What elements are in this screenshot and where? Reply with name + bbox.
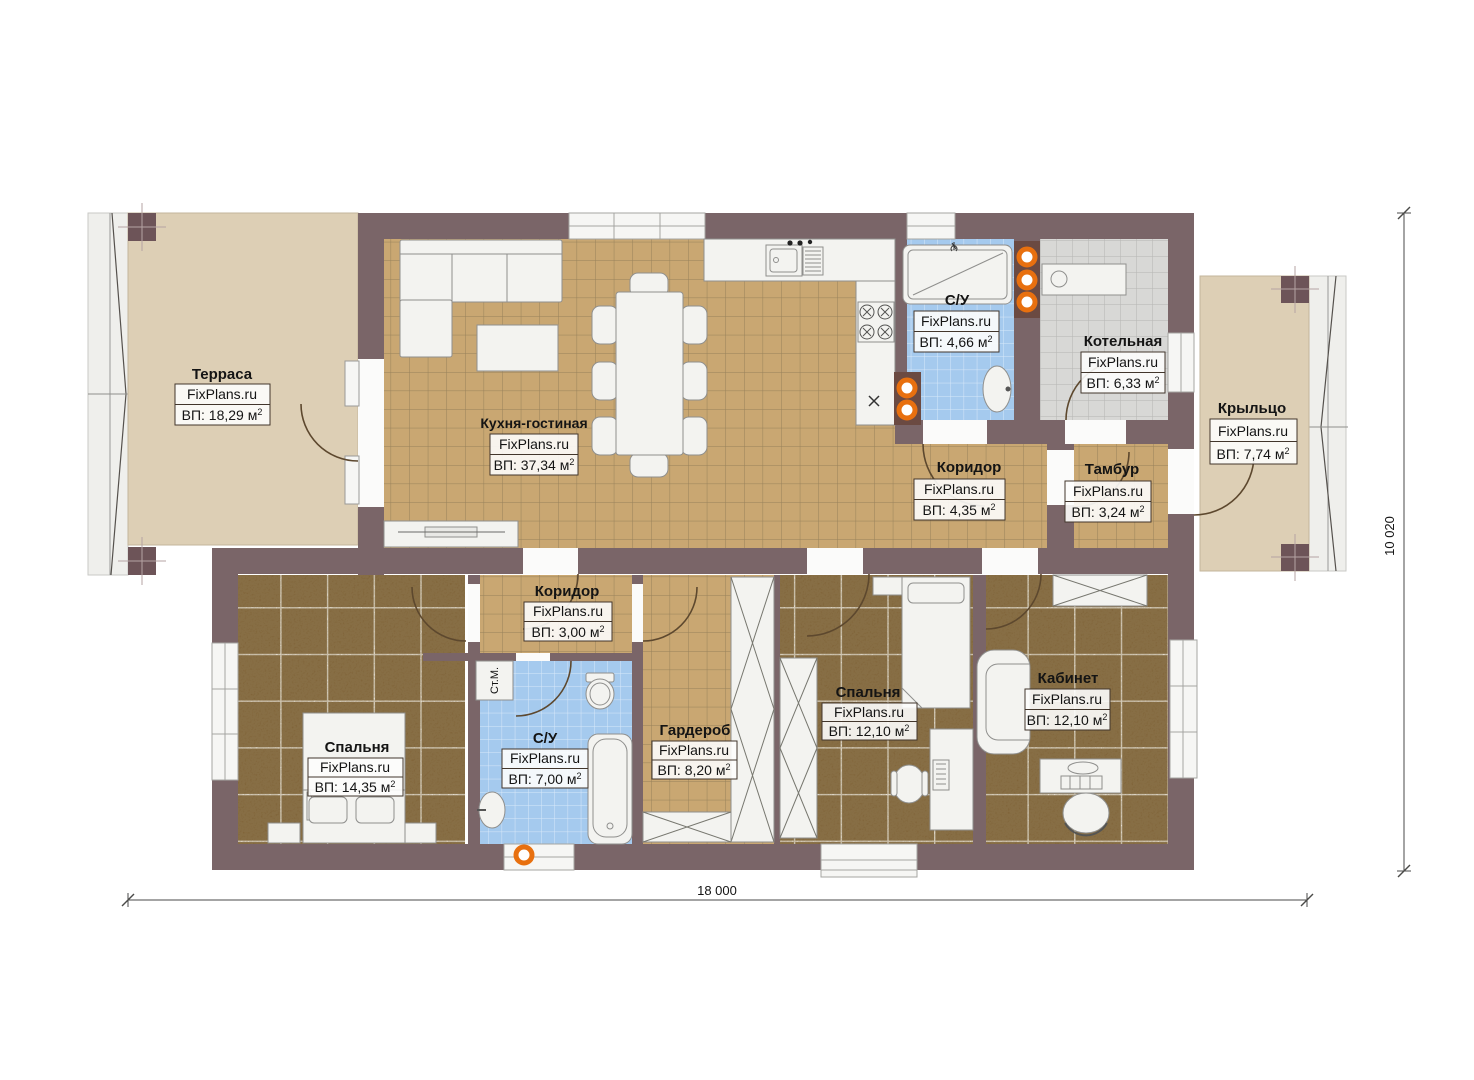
svg-text:ВП: 4,35 м2: ВП: 4,35 м2 <box>923 502 996 518</box>
svg-text:FixPlans.ru: FixPlans.ru <box>834 704 904 720</box>
svg-text:ВП: 3,00 м2: ВП: 3,00 м2 <box>532 624 605 640</box>
svg-text:FixPlans.ru: FixPlans.ru <box>187 386 257 402</box>
svg-text:18 000: 18 000 <box>697 883 737 898</box>
svg-text:ВП: 7,74 м2: ВП: 7,74 м2 <box>1217 446 1290 462</box>
svg-text:ВП: 12,10 м2: ВП: 12,10 м2 <box>1027 712 1108 728</box>
svg-text:Коридор: Коридор <box>937 459 1002 476</box>
svg-text:Терраса: Терраса <box>192 366 253 383</box>
svg-text:FixPlans.ru: FixPlans.ru <box>924 481 994 497</box>
svg-text:Крыльцо: Крыльцо <box>1218 400 1286 417</box>
svg-text:FixPlans.ru: FixPlans.ru <box>1032 691 1102 707</box>
svg-text:FixPlans.ru: FixPlans.ru <box>659 742 729 758</box>
svg-text:ВП: 18,29 м2: ВП: 18,29 м2 <box>182 407 263 423</box>
svg-text:Котельная: Котельная <box>1084 333 1163 350</box>
svg-text:FixPlans.ru: FixPlans.ru <box>1073 483 1143 499</box>
svg-text:ВП: 3,24 м2: ВП: 3,24 м2 <box>1072 504 1145 520</box>
svg-text:Спальня: Спальня <box>836 684 901 701</box>
svg-text:Кухня-гостиная: Кухня-гостиная <box>480 415 587 431</box>
svg-text:FixPlans.ru: FixPlans.ru <box>1088 354 1158 370</box>
svg-text:FixPlans.ru: FixPlans.ru <box>510 750 580 766</box>
svg-text:ВП: 6,33 м2: ВП: 6,33 м2 <box>1087 375 1160 391</box>
svg-text:С/У: С/У <box>533 730 558 747</box>
svg-text:FixPlans.ru: FixPlans.ru <box>533 603 603 619</box>
svg-text:ВП: 12,10 м2: ВП: 12,10 м2 <box>829 723 910 739</box>
svg-text:10 020: 10 020 <box>1382 516 1397 556</box>
svg-text:Спальня: Спальня <box>325 739 390 756</box>
svg-text:FixPlans.ru: FixPlans.ru <box>1218 423 1288 439</box>
svg-text:Кабинет: Кабинет <box>1038 670 1099 687</box>
svg-text:FixPlans.ru: FixPlans.ru <box>921 313 991 329</box>
svg-text:FixPlans.ru: FixPlans.ru <box>320 759 390 775</box>
svg-text:ВП: 37,34 м2: ВП: 37,34 м2 <box>494 457 575 473</box>
svg-text:ВП: 7,00 м2: ВП: 7,00 м2 <box>509 771 582 787</box>
svg-text:ВП: 8,20 м2: ВП: 8,20 м2 <box>658 762 731 778</box>
svg-text:С/У: С/У <box>945 292 970 309</box>
svg-text:ВП: 4,66 м2: ВП: 4,66 м2 <box>920 334 993 350</box>
svg-text:ВП: 14,35 м2: ВП: 14,35 м2 <box>315 779 396 795</box>
svg-text:FixPlans.ru: FixPlans.ru <box>499 436 569 452</box>
svg-text:Гардероб: Гардероб <box>660 722 731 739</box>
svg-text:Ст.М.: Ст.М. <box>489 667 501 694</box>
svg-text:Коридор: Коридор <box>535 583 600 600</box>
svg-text:Тамбур: Тамбур <box>1085 461 1139 478</box>
